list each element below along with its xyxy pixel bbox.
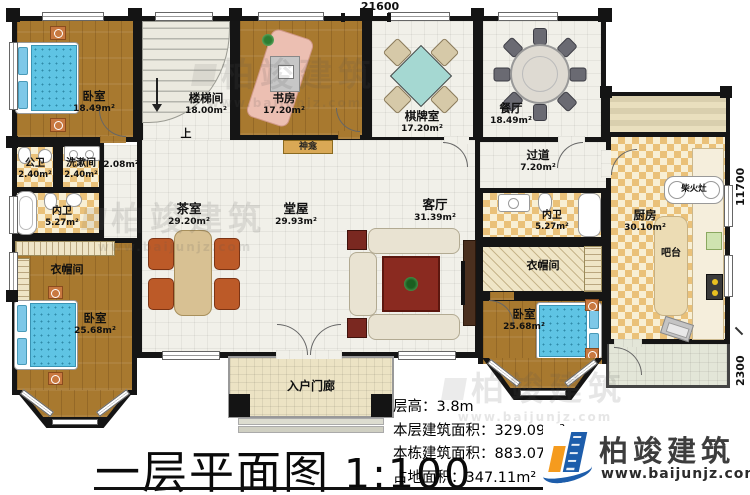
room-label-ensuite-bathroom-right: 内卫5.27m² bbox=[524, 210, 580, 232]
nightstand bbox=[50, 26, 66, 40]
room-label-dining-room: 餐厅18.49m² bbox=[480, 102, 542, 126]
nightstand bbox=[585, 299, 599, 311]
storage-nook bbox=[104, 145, 137, 238]
back-porch bbox=[606, 92, 730, 132]
nightstand bbox=[50, 118, 66, 132]
porch-pillar bbox=[229, 394, 250, 417]
tea-table bbox=[174, 230, 212, 316]
company-logo: 柏竣建筑 www.baijunjz.com bbox=[543, 426, 748, 492]
corner-table bbox=[347, 318, 367, 338]
room-label-stair-hall: 楼梯间18.00m² bbox=[170, 92, 242, 116]
porch-pillar bbox=[371, 394, 392, 417]
logo-text: 柏竣建筑 bbox=[599, 428, 735, 470]
window bbox=[9, 196, 18, 234]
tea-chair bbox=[148, 238, 174, 270]
room-label-washroom: 洗漱间2.40m² bbox=[59, 158, 103, 180]
rug bbox=[382, 256, 440, 312]
stat-floor-height: 层高：3.8m bbox=[393, 396, 613, 420]
window bbox=[155, 12, 213, 21]
tea-chair bbox=[214, 278, 240, 310]
entry-steps bbox=[238, 426, 384, 433]
stair-up-arrow-icon bbox=[156, 78, 158, 106]
room-label-entry-porch: 入户门廊 bbox=[260, 379, 362, 393]
window bbox=[498, 12, 558, 21]
room-label-living-room: 客厅31.39m² bbox=[400, 198, 470, 223]
entry-steps bbox=[238, 418, 384, 425]
wall-corner-block bbox=[720, 86, 732, 98]
window bbox=[9, 252, 18, 292]
window bbox=[162, 351, 220, 360]
room-label-ensuite-bathroom-left: 内卫5.27m² bbox=[36, 206, 88, 228]
window bbox=[9, 42, 18, 110]
nightstand bbox=[48, 286, 63, 299]
cutting-board bbox=[706, 232, 722, 250]
stove bbox=[706, 274, 723, 300]
bay-window bbox=[10, 390, 140, 432]
wood-stove-label: 柴火灶 bbox=[664, 184, 724, 194]
tv-cabinet bbox=[463, 240, 476, 326]
bathtub bbox=[15, 191, 37, 235]
logo-url: www.baijunjz.com bbox=[601, 466, 750, 482]
wall-corner-block bbox=[229, 8, 242, 21]
door-opening bbox=[338, 131, 360, 139]
tea-chair bbox=[148, 278, 174, 310]
dining-chair bbox=[570, 68, 587, 82]
stair-up-arrow-icon bbox=[152, 104, 162, 112]
dimension-label-right-upper: 11700 bbox=[734, 150, 747, 206]
sofa bbox=[368, 314, 460, 340]
bathtub bbox=[578, 193, 601, 237]
door-opening bbox=[100, 136, 126, 143]
room-label-bedroom-bottom-right: 卧室25.68m² bbox=[490, 308, 558, 332]
tea-chair bbox=[214, 238, 240, 270]
door-opening bbox=[614, 339, 642, 347]
floor-plan-page: 神龛 bbox=[0, 0, 750, 495]
window bbox=[724, 255, 733, 297]
room-label-bedroom-top-left: 卧室18.49m² bbox=[60, 90, 128, 114]
room-label-tea-room: 茶室29.20m² bbox=[156, 202, 222, 227]
room-label-cloakroom-left: 衣帽间 bbox=[38, 264, 96, 277]
wardrobe-shelves bbox=[15, 241, 115, 256]
wall-corner-block bbox=[6, 136, 18, 148]
wall-corner-block bbox=[128, 8, 142, 21]
stair-up-label: 上 bbox=[176, 128, 196, 141]
corner-table bbox=[347, 230, 367, 250]
dimension-tick bbox=[341, 13, 345, 22]
window bbox=[724, 185, 733, 227]
wall-corner-block bbox=[6, 290, 18, 302]
study-desk bbox=[270, 56, 300, 92]
bar-counter-label: 吧台 bbox=[652, 248, 690, 260]
wall-corner-block bbox=[598, 8, 612, 22]
sink bbox=[66, 193, 82, 207]
dining-chair bbox=[494, 68, 511, 82]
window bbox=[258, 12, 324, 21]
window bbox=[388, 12, 450, 21]
dimension-tick bbox=[387, 13, 391, 22]
shrine: 神龛 bbox=[283, 140, 333, 154]
wall-corner-block bbox=[471, 8, 484, 21]
nightstand bbox=[48, 372, 63, 385]
wall-corner-block bbox=[600, 86, 612, 98]
room-label-cloakroom-right: 衣帽间 bbox=[512, 260, 574, 273]
door-opening bbox=[490, 292, 514, 300]
sofa bbox=[349, 252, 377, 316]
room-label-hallway: 过道7.20m² bbox=[508, 149, 568, 173]
window bbox=[398, 351, 456, 360]
wardrobe-shelves bbox=[584, 246, 602, 292]
dining-chair bbox=[533, 28, 547, 45]
dining-table bbox=[510, 44, 570, 104]
room-label-study: 书房17.20m² bbox=[250, 92, 318, 116]
dimension-label-top: 21600 bbox=[340, 0, 420, 13]
room-label-storage-nook: 2.08m² bbox=[100, 160, 142, 171]
room-label-central-hall: 堂屋29.93m² bbox=[263, 202, 329, 227]
room-label-mahjong-room: 棋牌室17.20m² bbox=[388, 110, 456, 134]
plant bbox=[262, 34, 274, 46]
door-opening bbox=[601, 150, 611, 178]
dimension-tick bbox=[735, 327, 743, 335]
wall-corner-block bbox=[6, 8, 20, 22]
room-label-bedroom-bottom-left: 卧室25.68m² bbox=[60, 312, 130, 336]
dimension-label-right-lower: 2300 bbox=[734, 346, 747, 386]
room-label-public-bathroom: 公卫2.40m² bbox=[14, 158, 56, 180]
sofa bbox=[368, 228, 460, 254]
plant bbox=[404, 277, 418, 291]
window bbox=[42, 12, 104, 21]
room-label-kitchen: 厨房30.10m² bbox=[614, 209, 676, 233]
logo-building-icon bbox=[543, 428, 595, 486]
